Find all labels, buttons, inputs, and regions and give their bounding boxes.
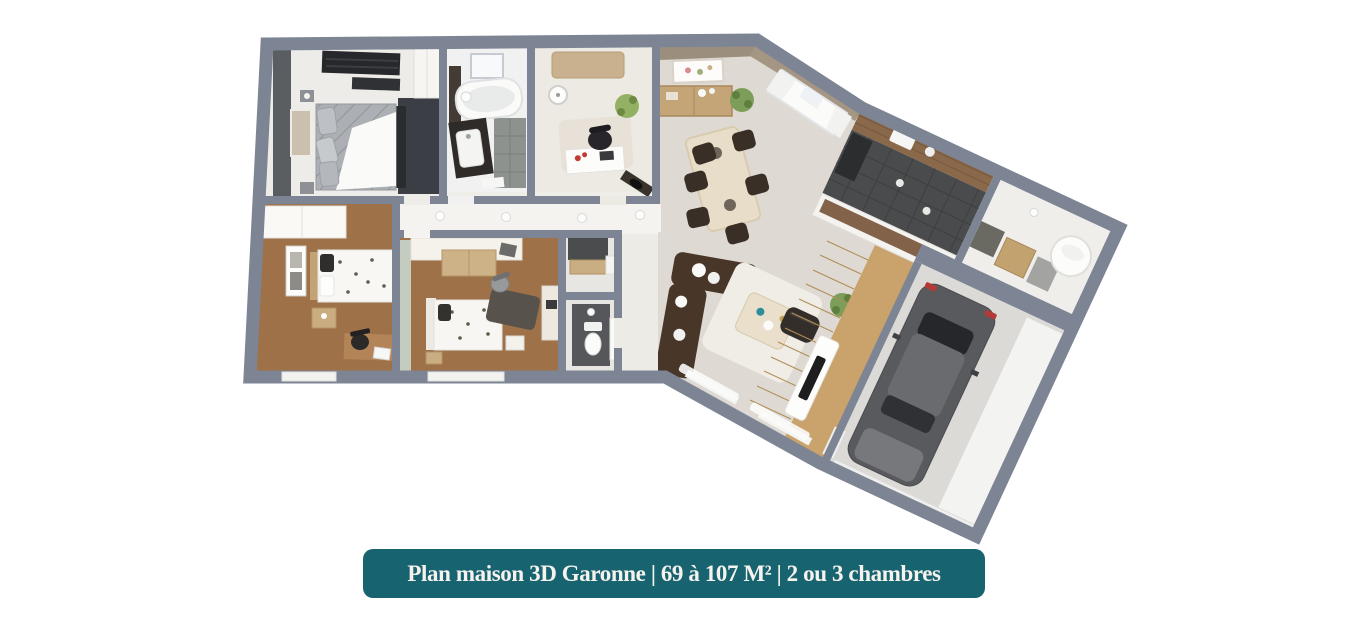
daybed xyxy=(552,52,624,78)
ceiling-light xyxy=(588,309,595,316)
toilet xyxy=(584,322,602,355)
room-bedroom-3 xyxy=(396,238,562,373)
room-office-bedroom xyxy=(535,48,656,197)
dining-picture-frame xyxy=(673,59,724,83)
wardrobe xyxy=(258,206,346,238)
closet-shelf xyxy=(568,238,608,260)
vanity-sink xyxy=(448,118,493,179)
caption-banner: Plan maison 3D Garonne | 69 à 107 M² | 2… xyxy=(363,549,985,598)
nightstand xyxy=(312,308,336,328)
office-chair xyxy=(588,124,612,150)
accent-wall xyxy=(273,50,291,196)
caption-text: Plan maison 3D Garonne | 69 à 107 M² | 2… xyxy=(407,561,940,587)
wall-pictures xyxy=(286,246,306,296)
closet-cabinet xyxy=(570,260,608,274)
page: Plan maison 3D Garonne | 69 à 107 M² | 2… xyxy=(0,0,1350,630)
wall-picture xyxy=(291,110,311,156)
nightstand xyxy=(300,182,314,194)
floorplan-3d xyxy=(0,0,1350,630)
room-master-bedroom xyxy=(267,48,441,196)
dining-plant xyxy=(730,88,754,112)
room-wc xyxy=(562,296,618,373)
ceiling-light xyxy=(461,92,471,102)
desk xyxy=(565,146,625,174)
room-closet xyxy=(562,234,618,296)
nightstand xyxy=(506,336,524,350)
nightstand xyxy=(426,352,442,364)
room-bedroom-2 xyxy=(254,204,396,373)
floor-lamp xyxy=(549,86,567,104)
room-bathroom xyxy=(447,48,529,192)
skylight xyxy=(471,54,503,78)
dining-sideboard xyxy=(657,86,732,116)
double-bed xyxy=(315,104,406,190)
single-bed xyxy=(310,250,394,302)
sage-accent-wall xyxy=(400,240,411,373)
office-plant xyxy=(615,94,639,118)
